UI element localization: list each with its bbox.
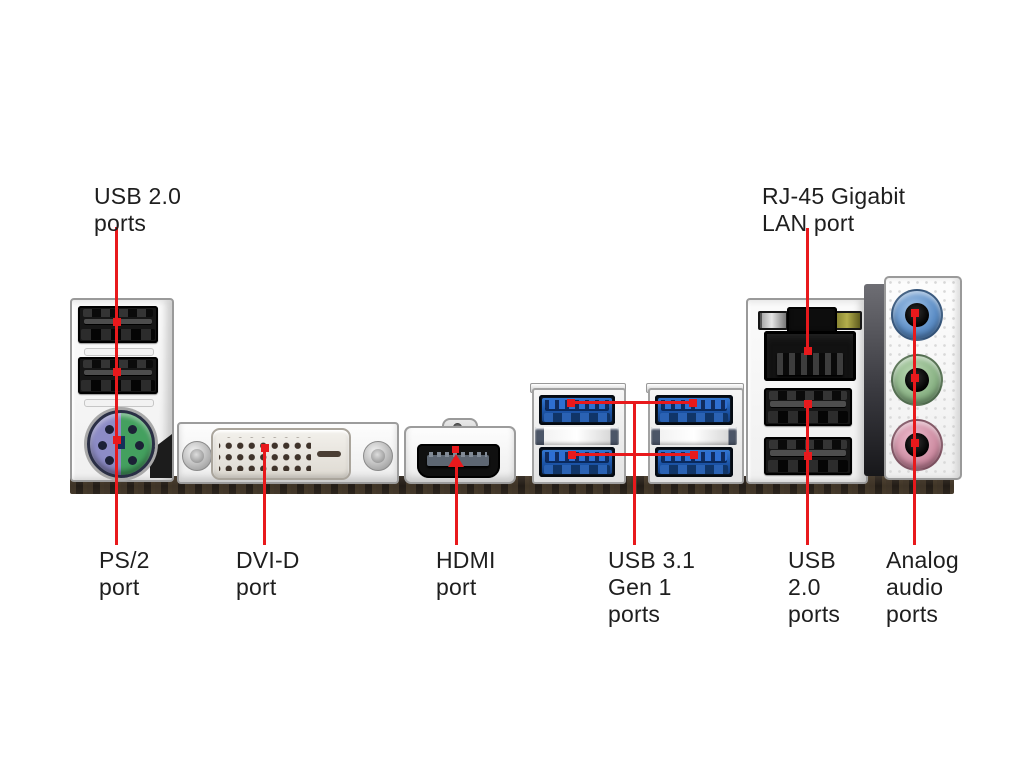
- usb-teeth: [769, 391, 846, 400]
- ps2-pin-hole: [128, 456, 137, 465]
- rj45-pins: [777, 353, 843, 375]
- leader-dot: [804, 347, 812, 355]
- ps2-port-icon: [87, 410, 155, 478]
- usb3-stack-divider: [651, 427, 737, 445]
- ps2-pin-hole: [105, 456, 114, 465]
- usb3-contacts: [660, 465, 729, 474]
- leader-line-audio: [913, 312, 916, 545]
- leader-dot: [690, 451, 698, 459]
- ps2-pin-hole: [105, 425, 114, 434]
- usb-teeth: [81, 329, 155, 341]
- leader-line-rj45: [806, 228, 809, 352]
- leader-line-usb20-right: [806, 402, 809, 545]
- usb3-contacts: [544, 465, 611, 474]
- label-audio: Analog audio ports: [886, 547, 959, 628]
- ps2-pin-hole: [98, 441, 107, 450]
- label-dvid: DVI-D port: [236, 547, 300, 601]
- leader-dot: [689, 399, 697, 407]
- label-hdmi: HDMI port: [436, 547, 496, 601]
- label-usb20-bottom: USB 2.0 ports: [788, 547, 840, 628]
- leader-line-usb20-ps2: [115, 227, 118, 545]
- lan-led-left: [758, 311, 788, 330]
- dvi-blade-slot: [317, 451, 341, 457]
- ps2-pin-hole: [135, 441, 144, 450]
- leader-dot: [911, 374, 919, 382]
- label-rj45: RJ-45 Gigabit LAN port: [762, 183, 905, 237]
- dvi-screw: [182, 441, 212, 471]
- leader-dot: [804, 452, 812, 460]
- leader-dot: [113, 368, 121, 376]
- usb3-contacts: [660, 413, 729, 422]
- shield-emboss: [84, 399, 154, 407]
- dvi-screw: [363, 441, 393, 471]
- usb3-port-icon: [539, 447, 615, 477]
- leader-dot: [568, 451, 576, 459]
- label-usb20-top: USB 2.0 ports: [94, 183, 181, 237]
- leader-dot: [452, 446, 459, 453]
- leader-dot: [911, 309, 919, 317]
- leader-dot: [804, 400, 812, 408]
- usb3-port-icon: [539, 395, 615, 425]
- usb-teeth: [83, 309, 153, 318]
- leader-dot: [911, 439, 919, 447]
- usb3-stack-divider: [535, 427, 619, 445]
- ps2-pin-hole: [128, 425, 137, 434]
- leader-line-usb31: [633, 401, 636, 545]
- leader-dot: [113, 318, 121, 326]
- label-ps2: PS/2 port: [99, 547, 150, 601]
- leader-line-hdmi: [455, 465, 458, 545]
- leader-dot: [113, 436, 121, 444]
- usb3-contacts: [544, 413, 611, 422]
- shield-emboss: [84, 348, 154, 356]
- rear-io-panel-diagram: USB 2.0 ports RJ-45 Gigabit LAN port PS/…: [0, 0, 1024, 768]
- leader-line-dvid: [263, 448, 266, 545]
- label-usb31: USB 3.1 Gen 1 ports: [608, 547, 695, 628]
- leader-dot: [567, 399, 575, 407]
- usb-teeth: [81, 380, 155, 392]
- leader-dot: [261, 444, 269, 452]
